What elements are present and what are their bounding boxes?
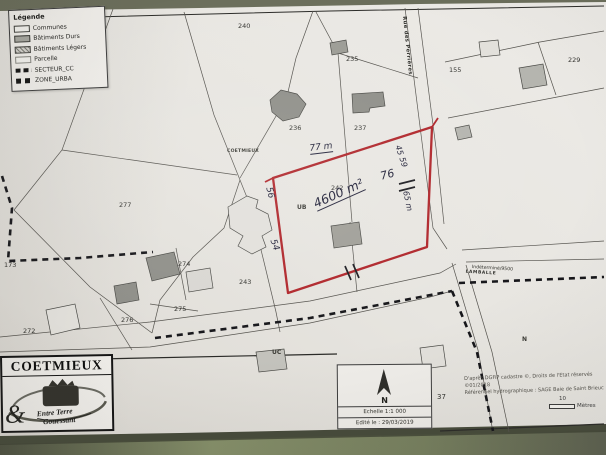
edition-date-text: Edité le : 29/03/2019 xyxy=(338,417,431,429)
zone-urba-swatch xyxy=(16,78,32,84)
parcel-number-229: 229 xyxy=(568,56,580,64)
north-arrow-icon xyxy=(337,367,432,398)
communes-swatch xyxy=(14,25,30,33)
legend-item-label: ZONE_URBA xyxy=(35,75,72,84)
parcel-number-235: 235 xyxy=(346,55,358,63)
legend-item-zone-urba: ZONE_URBA xyxy=(16,74,103,85)
zone-label-n: N xyxy=(522,336,527,343)
parcel-number-155: 155 xyxy=(449,66,461,74)
zone-label-uc: UC xyxy=(272,349,281,356)
legend-item-communes: Communes xyxy=(14,21,101,32)
parcel-number-240: 240 xyxy=(238,22,250,30)
zone-label-ub: UB xyxy=(297,204,306,211)
legend-item-label: Bâtiments Légers xyxy=(34,43,87,52)
legend-title: Légende xyxy=(13,10,100,22)
place-name-label: COETMIEUX xyxy=(227,149,259,154)
parcel-number-277: 277 xyxy=(119,201,131,209)
parcel-number-173: 173 xyxy=(4,261,16,269)
legend-item-parcelle: Parcelle xyxy=(15,53,102,64)
map-scale-text: Echelle 1:1 000 xyxy=(338,406,431,418)
cadastral-map-photo: Légende Communes Bâtiments Durs Bâtiment… xyxy=(0,0,606,455)
parcel-number-243: 243 xyxy=(239,278,251,286)
legend-item-label: Parcelle xyxy=(34,55,58,63)
batiments-durs-swatch xyxy=(14,35,30,43)
logo-text-line2: Gouessant xyxy=(43,415,77,426)
legend-item-secteur-cc: SECTEUR_CC xyxy=(16,63,103,74)
parcelle-swatch xyxy=(15,56,31,64)
north-scale-box: N Echelle 1:1 000 Edité le : 29/03/2019 xyxy=(337,364,433,430)
legend-item-batiments-durs: Bâtiments Durs xyxy=(14,32,101,43)
secteur-cc-swatch xyxy=(16,68,32,73)
scale-bar-unit: Mètres xyxy=(577,403,596,409)
parcel-number-274: 274 xyxy=(178,260,190,268)
parcel-number-276: 276 xyxy=(121,316,133,324)
commune-name: COETMIEUX xyxy=(2,356,111,377)
parcel-number-37: 37 xyxy=(437,393,446,401)
legend-item-label: Bâtiments Durs xyxy=(33,33,80,42)
scale-bar-rect xyxy=(549,404,575,409)
legend-item-label: Communes xyxy=(33,23,67,31)
legend: Légende Communes Bâtiments Durs Bâtiment… xyxy=(8,6,108,92)
scale-bar: 10 Mètres xyxy=(549,396,605,409)
batiments-legers-swatch xyxy=(15,46,31,54)
legend-item-label: SECTEUR_CC xyxy=(34,65,73,74)
commune-logo: & Entre Terre Gouessant xyxy=(2,375,112,429)
parcel-number-275: 275 xyxy=(174,305,186,313)
commune-title-box: COETMIEUX & Entre Terre Gouessant xyxy=(0,354,114,433)
legend-item-batiments-legers: Bâtiments Légers xyxy=(15,42,102,53)
parcel-number-237: 237 xyxy=(354,124,366,132)
parcel-number-272: 272 xyxy=(23,327,35,335)
north-letter: N xyxy=(381,397,388,405)
logo-ampersand: & xyxy=(5,400,27,429)
parcel-number-236: 236 xyxy=(289,124,301,132)
north-arrow-area: N xyxy=(338,365,431,407)
scale-bar-value: 10 xyxy=(559,396,605,402)
